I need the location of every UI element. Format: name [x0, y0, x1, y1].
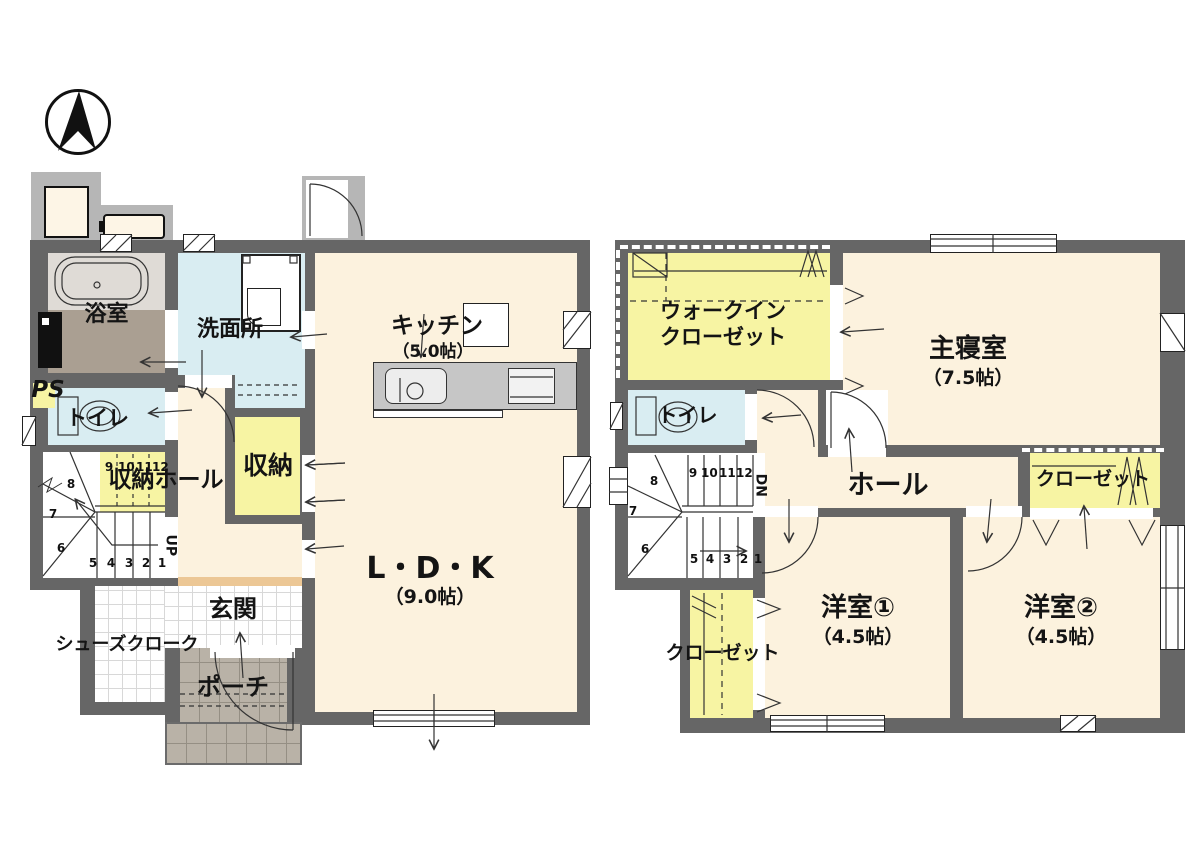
window — [770, 715, 885, 732]
stair-number: 2 — [139, 556, 153, 570]
window — [563, 311, 591, 349]
label-room1-size: （4.5帖） — [778, 628, 938, 648]
floor-washroom-shelf — [235, 375, 305, 408]
window — [563, 456, 591, 508]
room-label-toilet-1f: トイレ — [50, 407, 145, 429]
window — [100, 234, 132, 252]
door-gap — [302, 311, 315, 349]
stair-number: 3 — [720, 552, 734, 566]
stair-number: 4 — [104, 556, 118, 570]
stair-number: 12 — [152, 460, 166, 474]
window — [183, 234, 215, 252]
stair-number: 9 — [686, 466, 700, 480]
window — [610, 402, 623, 430]
room-label-hall-2f: ホール — [808, 472, 968, 500]
water-heater-knob — [99, 221, 104, 232]
room-label-room2: 洋室② — [981, 595, 1141, 622]
bedroom-door-swing — [826, 390, 888, 445]
stair-number: 8 — [647, 474, 661, 488]
stair-number: 7 — [626, 504, 640, 518]
door-gap — [966, 506, 1022, 517]
label-kitchen-size: （5.0帖） — [373, 344, 493, 362]
floor-plan: 浴室 洗面所 トイレ PS キッチン （5.0帖） L・D・K （9.0帖） 収… — [0, 0, 1200, 868]
window — [22, 416, 36, 446]
stair-number: 1 — [155, 556, 169, 570]
window — [930, 234, 1057, 253]
stair-number: 3 — [122, 556, 136, 570]
window — [373, 710, 495, 727]
door-gap — [302, 540, 315, 578]
stair-number: 9 — [102, 460, 116, 474]
stair-number: 1 — [751, 552, 765, 566]
kitchen-sink — [385, 368, 447, 404]
window — [1160, 525, 1185, 650]
stair-number: 8 — [64, 477, 78, 491]
room-label-bath: 浴室 — [48, 303, 165, 326]
floor-hall-2f — [757, 390, 818, 457]
label-room2-size: （4.5帖） — [981, 628, 1141, 648]
water-tank — [44, 186, 89, 238]
front-door-gap — [210, 645, 295, 658]
window — [609, 467, 628, 505]
room-label-washroom: 洗面所 — [170, 318, 290, 341]
stair-number: 11 — [719, 466, 733, 480]
stair-number: 2 — [737, 552, 751, 566]
door-gap — [762, 506, 818, 517]
stair-number: 6 — [638, 542, 652, 556]
room-label-entrance: 玄関 — [183, 597, 283, 622]
room-label-closet-b: クローゼット — [1023, 470, 1163, 490]
counter-edge — [373, 410, 503, 418]
door-gap — [302, 455, 315, 512]
window — [1160, 313, 1185, 352]
door-gap — [185, 375, 232, 388]
room-label-closet-a: クローゼット — [650, 644, 795, 664]
door-gap — [745, 394, 757, 440]
room-label-wic: ウォークイン — [643, 300, 803, 322]
room-label-kitchen: キッチン — [377, 314, 497, 338]
stair-number: 10 — [701, 466, 715, 480]
floor-hall-1f — [225, 524, 302, 577]
window — [1060, 715, 1096, 732]
room-label-porch: ポーチ — [183, 675, 283, 700]
stair-number: 12 — [736, 466, 750, 480]
label-master-size: （7.5帖） — [888, 369, 1048, 389]
entrance-step — [178, 577, 302, 586]
compass-icon — [45, 89, 111, 155]
stair-number: 6 — [54, 541, 68, 555]
kitchen-stove — [508, 368, 555, 404]
room-label-room1: 洋室① — [778, 595, 938, 622]
label-ldk-size: （9.0帖） — [330, 588, 530, 608]
stair-number: 7 — [46, 507, 60, 521]
back-door-swing — [306, 180, 348, 238]
door-gap — [830, 285, 843, 380]
room-label-wic: クローゼット — [643, 326, 803, 348]
stair-number: 5 — [86, 556, 100, 570]
roof-dash — [620, 245, 830, 249]
stair-number: 5 — [687, 552, 701, 566]
door-gap — [1030, 508, 1153, 519]
wall-stairs-hall — [753, 517, 765, 578]
roof-dash — [616, 250, 620, 378]
room-label-storage: 収納 — [237, 453, 299, 479]
room-label-shoe-cloak: シューズクローク — [52, 636, 202, 655]
porch-step — [165, 722, 302, 765]
room-label-master-bedroom: 主寝室 — [888, 336, 1048, 363]
stair-number: 11 — [136, 460, 150, 474]
stairs-dn-label: DN — [753, 470, 768, 500]
room-label-ldk: L・D・K — [330, 553, 530, 585]
label-ps: PS — [28, 378, 68, 402]
door-gap — [828, 445, 886, 457]
door-gap — [165, 392, 178, 440]
roof-dash — [1022, 448, 1164, 452]
stair-number: 4 — [703, 552, 717, 566]
room-label-toilet-2f: トイレ — [640, 405, 735, 426]
stair-number: 10 — [118, 460, 132, 474]
